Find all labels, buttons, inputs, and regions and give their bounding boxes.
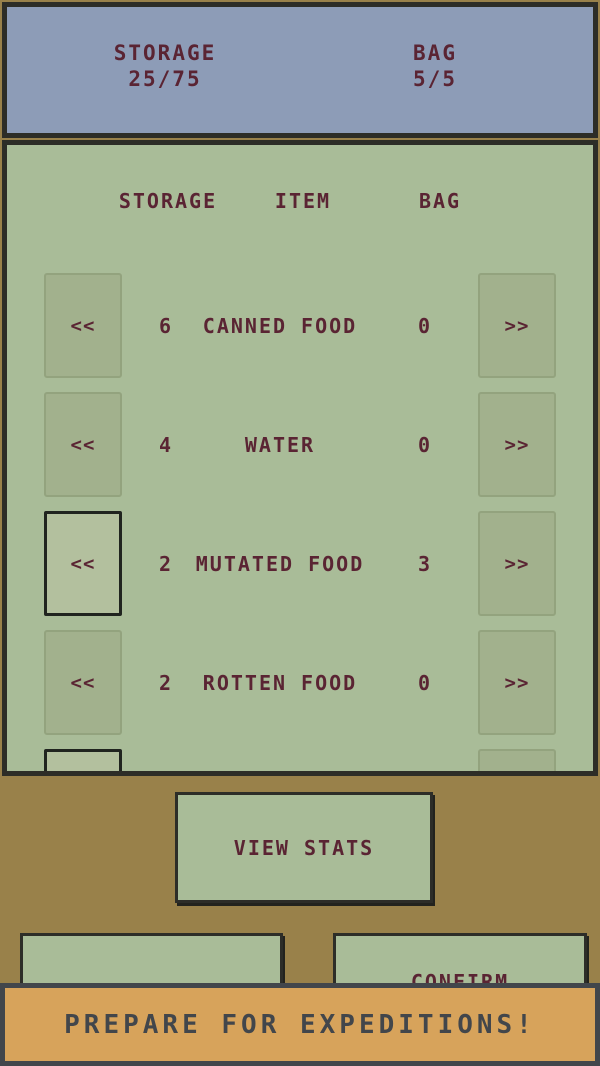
item-row-mutated-food: << 2 MUTATED FOOD 3 >> — [7, 511, 593, 616]
move-to-bag-button[interactable]: >> — [478, 273, 556, 378]
move-to-bag-button[interactable]: >> — [478, 511, 556, 616]
chevrons-right-icon: >> — [505, 434, 530, 456]
chevrons-left-icon: << — [71, 434, 96, 456]
view-stats-button[interactable]: VIEW STATS — [175, 792, 433, 903]
expedition-banner-text: PREPARE FOR EXPEDITIONS! — [64, 1010, 536, 1040]
view-stats-label: VIEW STATS — [234, 836, 374, 860]
bag-count: 3 — [418, 511, 432, 616]
storage-capacity-value: 25/75 — [114, 66, 217, 92]
column-header-storage: STORAGE — [119, 189, 217, 213]
bag-count: 0 — [418, 273, 432, 378]
item-row-canned-food: << 6 CANNED FOOD 0 >> — [7, 273, 593, 378]
storage-capacity: STORAGE 25/75 — [114, 40, 217, 92]
item-row-rotten-food: << 2 ROTTEN FOOD 0 >> — [7, 630, 593, 735]
chevrons-left-icon: << — [71, 553, 96, 575]
move-to-storage-button[interactable]: << — [44, 511, 122, 616]
bag-capacity-value: 5/5 — [413, 66, 457, 92]
storage-count: 2 — [159, 630, 173, 735]
storage-capacity-label: STORAGE — [114, 40, 217, 66]
item-name: CANNED FOOD — [203, 273, 357, 378]
move-to-storage-button[interactable]: << — [44, 273, 122, 378]
move-to-storage-button[interactable]: << — [44, 392, 122, 497]
item-row-water: << 4 WATER 0 >> — [7, 392, 593, 497]
move-to-bag-button[interactable] — [478, 749, 556, 776]
inventory-transfer-panel: STORAGE ITEM BAG << 6 CANNED FOOD 0 >> <… — [2, 140, 598, 776]
item-name: WATER — [245, 392, 315, 497]
move-to-bag-button[interactable]: >> — [478, 630, 556, 735]
move-to-storage-button[interactable] — [44, 749, 122, 776]
storage-count: 4 — [159, 392, 173, 497]
bag-count: 0 — [418, 630, 432, 735]
item-row-partial — [7, 749, 593, 776]
column-header-item: ITEM — [275, 189, 331, 213]
bag-count: 0 — [418, 392, 432, 497]
column-header-bag: BAG — [419, 189, 461, 213]
bag-capacity-label: BAG — [413, 40, 457, 66]
chevrons-left-icon: << — [71, 672, 96, 694]
storage-count: 6 — [159, 273, 173, 378]
chevrons-right-icon: >> — [505, 315, 530, 337]
chevrons-right-icon: >> — [505, 553, 530, 575]
chevrons-right-icon: >> — [505, 672, 530, 694]
bag-capacity: BAG 5/5 — [413, 40, 457, 92]
expedition-banner: PREPARE FOR EXPEDITIONS! — [0, 983, 600, 1066]
storage-count: 2 — [159, 511, 173, 616]
move-to-storage-button[interactable]: << — [44, 630, 122, 735]
item-name: MUTATED FOOD — [196, 511, 365, 616]
capacity-header-panel: STORAGE 25/75 BAG 5/5 — [2, 2, 598, 138]
move-to-bag-button[interactable]: >> — [478, 392, 556, 497]
item-name: ROTTEN FOOD — [203, 630, 357, 735]
chevrons-left-icon: << — [71, 315, 96, 337]
